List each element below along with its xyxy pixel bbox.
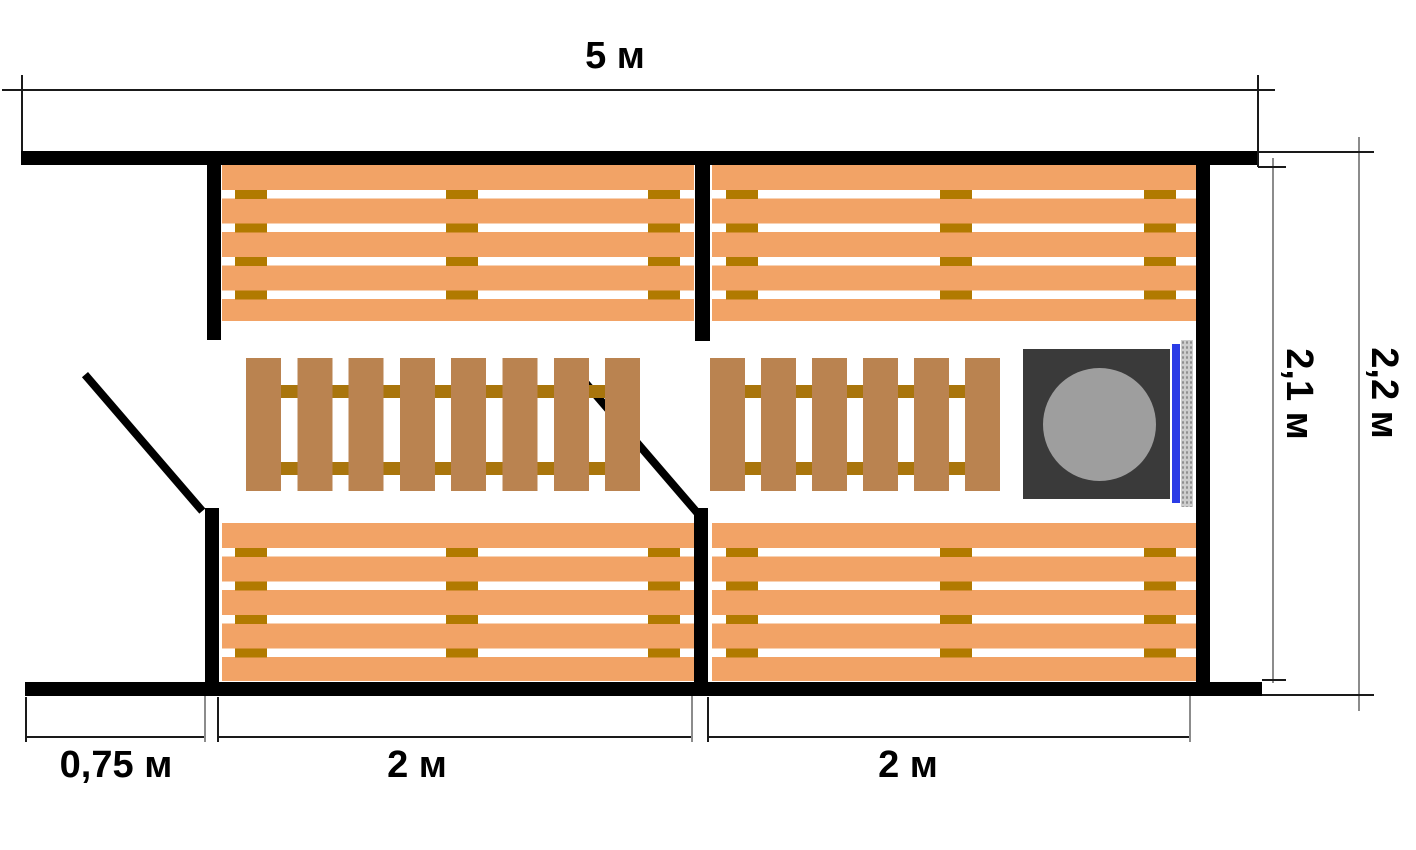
dimension-line-height-inner bbox=[1272, 158, 1274, 683]
partition-entry-bottom bbox=[205, 508, 219, 682]
dimension-tick bbox=[1258, 151, 1374, 153]
dimension-tick bbox=[1257, 75, 1259, 167]
bench-cleat-column bbox=[235, 548, 267, 658]
dimension-tick bbox=[691, 696, 693, 742]
bench-top-left bbox=[222, 165, 694, 321]
dimension-tick bbox=[1189, 696, 1191, 742]
dimension-tick bbox=[1262, 679, 1286, 681]
dimension-label-height-outer: 2,2 м bbox=[1364, 328, 1404, 458]
dimension-label-total-width: 5 м bbox=[545, 36, 685, 76]
bench-cleat-column bbox=[648, 190, 680, 300]
partition-middle-top bbox=[695, 164, 710, 341]
dimension-line-top bbox=[2, 89, 1275, 91]
dimension-tick bbox=[25, 697, 27, 742]
duckboard-left bbox=[246, 358, 640, 491]
dimension-line-bottom-entry bbox=[26, 736, 206, 738]
stove-door-glass bbox=[1172, 344, 1180, 503]
bench-cleat-column bbox=[648, 548, 680, 658]
outer-wall-right bbox=[1196, 165, 1210, 682]
duckboard-slats bbox=[710, 358, 1000, 491]
stove-round-lid bbox=[1043, 368, 1156, 481]
bench-cleat-column bbox=[1144, 548, 1176, 658]
dimension-label-entry-width: 0,75 м bbox=[46, 745, 186, 785]
bench-bottom-right bbox=[712, 523, 1196, 681]
dimension-tick bbox=[1258, 166, 1286, 168]
bench-cleat-column bbox=[726, 190, 758, 300]
bench-bottom-left bbox=[222, 523, 694, 681]
dimension-tick bbox=[21, 75, 23, 151]
dimension-label-left-room-width: 2 м bbox=[347, 745, 487, 785]
bench-cleat-column bbox=[1144, 190, 1176, 300]
partition-middle-bottom bbox=[694, 508, 708, 682]
dimension-tick bbox=[1262, 694, 1374, 696]
dimension-label-right-room-width: 2 м bbox=[838, 745, 978, 785]
bench-cleat-column bbox=[235, 190, 267, 300]
bench-cleat-column bbox=[446, 548, 478, 658]
duckboard-slats bbox=[246, 358, 640, 491]
bench-cleat-column bbox=[940, 548, 972, 658]
dimension-tick bbox=[217, 697, 219, 742]
bench-cleat-column bbox=[726, 548, 758, 658]
dimension-line-bottom-right-room bbox=[708, 736, 1190, 738]
dimension-line-height-outer bbox=[1358, 137, 1360, 711]
dimension-line-bottom-left-room bbox=[218, 736, 692, 738]
outer-wall-bottom bbox=[25, 682, 1262, 696]
dimension-tick bbox=[707, 697, 709, 742]
floor-plan-canvas: 5 м 2,1 м 2,2 м 0,75 м 2 м 2 м bbox=[0, 0, 1416, 850]
partition-entry-top bbox=[207, 165, 221, 340]
entry-door-leaf bbox=[82, 372, 205, 514]
duckboard-right bbox=[710, 358, 1000, 491]
bench-cleat-column bbox=[446, 190, 478, 300]
dimension-label-height-inner: 2,1 м bbox=[1279, 329, 1319, 459]
stove-body bbox=[1023, 349, 1170, 499]
bench-cleat-column bbox=[940, 190, 972, 300]
dimension-tick bbox=[204, 696, 206, 742]
outer-wall-top bbox=[21, 151, 1258, 165]
stove-heat-shield bbox=[1181, 340, 1193, 507]
bench-top-right bbox=[712, 165, 1196, 321]
